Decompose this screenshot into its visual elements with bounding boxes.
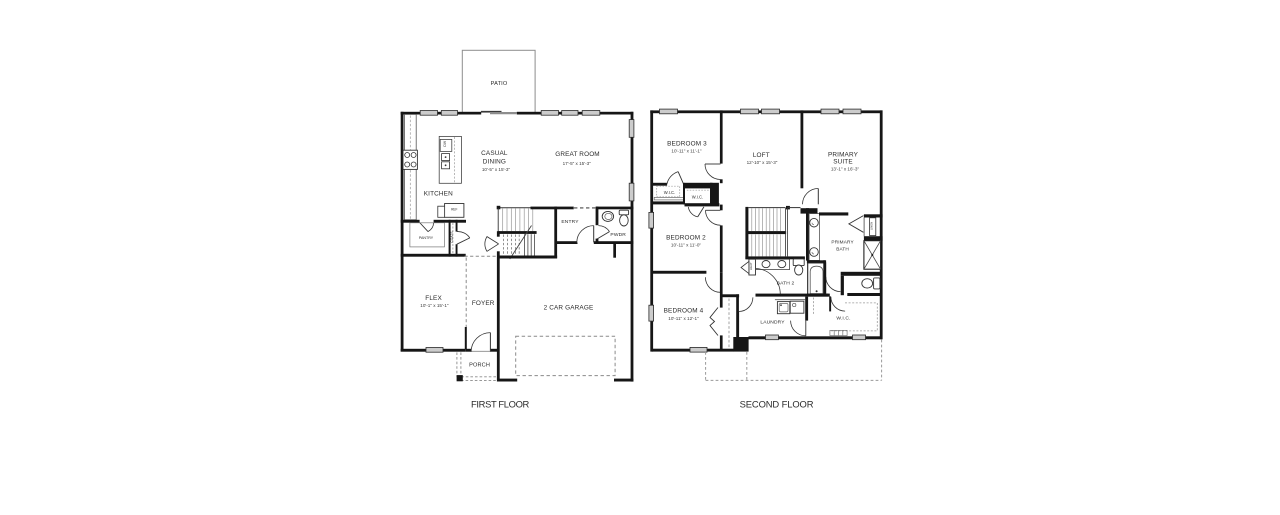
svg-text:W.I.C.: W.I.C. [664,190,675,195]
svg-text:SUITE: SUITE [833,159,853,166]
svg-text:BATH: BATH [836,246,849,251]
svg-text:GREAT ROOM: GREAT ROOM [555,151,600,158]
svg-text:DW: DW [443,140,447,146]
svg-text:PWDR: PWDR [610,232,626,238]
svg-text:BEDROOM 2: BEDROOM 2 [666,234,706,241]
svg-text:PRIMARY: PRIMARY [831,239,854,244]
svg-text:12'-10" x 15'-3": 12'-10" x 15'-3" [747,160,778,165]
svg-text:10'-11" x 11'-1": 10'-11" x 11'-1" [671,149,701,154]
svg-text:LINEN: LINEN [870,222,874,230]
svg-text:W.I.C.: W.I.C. [692,195,703,200]
svg-text:DINING: DINING [483,159,506,166]
svg-text:COATS: COATS [450,231,454,243]
svg-text:PRIMARY: PRIMARY [828,151,859,158]
svg-text:PATIO: PATIO [491,81,508,87]
svg-text:FIRST FLOOR: FIRST FLOOR [471,398,530,409]
svg-text:CASUAL: CASUAL [481,150,508,157]
svg-text:BEDROOM 4: BEDROOM 4 [664,308,704,315]
svg-text:10'-5" x 15'-3": 10'-5" x 15'-3" [482,167,511,172]
svg-text:BEDROOM 3: BEDROOM 3 [667,140,707,147]
svg-text:17'-5" x 15'-3": 17'-5" x 15'-3" [563,161,592,166]
svg-text:FOYER: FOYER [472,300,495,307]
svg-text:10'-11" x 11'-0": 10'-11" x 11'-0" [671,242,701,247]
svg-text:W.I.C.: W.I.C. [836,315,850,321]
svg-text:10'-11" x 12'-1": 10'-11" x 12'-1" [668,316,699,321]
svg-text:LAUNDRY: LAUNDRY [760,319,785,325]
svg-text:HEAT: HEAT [749,262,753,270]
svg-text:FLEX: FLEX [425,295,442,302]
svg-text:PANTRY: PANTRY [419,236,434,240]
svg-text:LOFT: LOFT [753,152,770,159]
svg-text:13'-1" x 16'-3": 13'-1" x 16'-3" [831,167,860,172]
svg-text:2 CAR GARAGE: 2 CAR GARAGE [544,305,594,312]
svg-text:REF: REF [451,207,457,211]
svg-text:ENTRY: ENTRY [561,219,579,225]
svg-text:SECOND FLOOR: SECOND FLOOR [740,398,814,409]
svg-text:KITCHEN: KITCHEN [424,191,453,198]
svg-text:PORCH: PORCH [469,363,490,369]
svg-text:BATH 2: BATH 2 [777,280,795,286]
svg-text:10'-1" x 15'-1": 10'-1" x 15'-1" [420,303,449,308]
